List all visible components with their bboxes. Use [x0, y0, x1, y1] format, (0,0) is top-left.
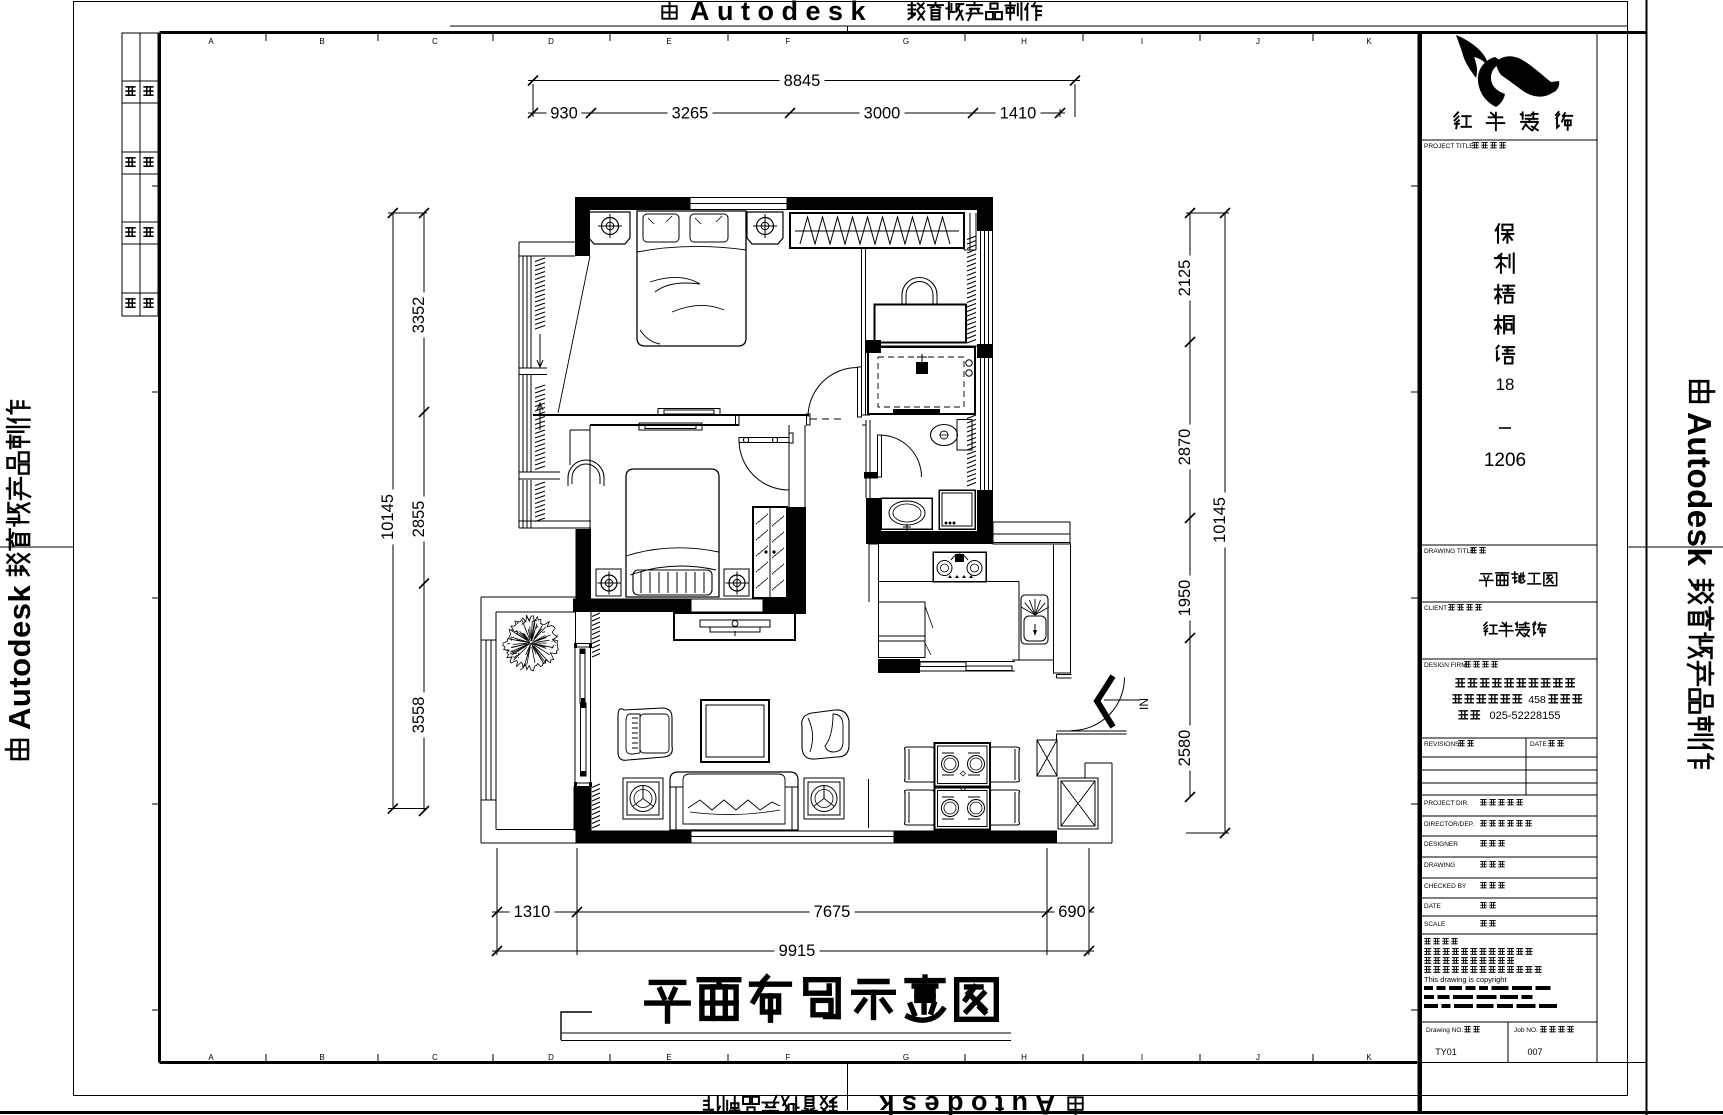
svg-text:Job NO.: Job NO.	[1514, 1027, 1538, 1034]
svg-text:REVISIONS: REVISIONS	[1424, 741, 1460, 748]
svg-text:3558: 3558	[410, 697, 428, 734]
svg-text:18: 18	[1496, 375, 1515, 394]
svg-text:2125: 2125	[1176, 260, 1194, 297]
svg-text:10145: 10145	[379, 494, 397, 540]
svg-text:1410: 1410	[1000, 105, 1037, 123]
svg-text:B: B	[319, 37, 324, 46]
svg-text:2870: 2870	[1176, 429, 1194, 466]
svg-text:D: D	[548, 1053, 554, 1062]
svg-text:9915: 9915	[779, 942, 816, 960]
svg-text:930: 930	[550, 105, 578, 123]
svg-text:DRAWING TITLE: DRAWING TITLE	[1424, 548, 1475, 555]
svg-text:This drawing is copyright: This drawing is copyright	[1424, 975, 1507, 984]
svg-text:A: A	[208, 37, 214, 46]
svg-text:F: F	[786, 37, 791, 46]
svg-text:025-52228155: 025-52228155	[1490, 710, 1561, 722]
svg-text:DATE: DATE	[1424, 903, 1442, 910]
svg-text:Autodesk: Autodesk	[2, 585, 37, 731]
svg-text:C: C	[432, 37, 438, 46]
svg-text:B: B	[319, 1053, 324, 1062]
svg-text:H: H	[1021, 1053, 1027, 1062]
svg-text:DESIGN FIRM: DESIGN FIRM	[1424, 662, 1467, 669]
svg-text:8845: 8845	[784, 72, 821, 90]
svg-text:G: G	[903, 1053, 909, 1062]
svg-text:CHECKED BY: CHECKED BY	[1424, 883, 1467, 890]
svg-text:DESIGNER: DESIGNER	[1424, 841, 1458, 848]
svg-text:IN: IN	[1137, 698, 1151, 710]
svg-text:Autodesk: Autodesk	[690, 0, 873, 26]
svg-text:K: K	[1366, 37, 1372, 46]
svg-text:J: J	[1256, 37, 1260, 46]
svg-text:3352: 3352	[410, 297, 428, 334]
svg-text:E: E	[666, 1053, 671, 1062]
svg-text:I: I	[1141, 37, 1143, 46]
svg-text:7675: 7675	[814, 903, 851, 921]
svg-text:2580: 2580	[1176, 730, 1194, 767]
svg-text:K: K	[1366, 1053, 1372, 1062]
svg-text:007: 007	[1527, 1047, 1542, 1057]
svg-text:F: F	[786, 1053, 791, 1062]
svg-text:SCALE: SCALE	[1424, 921, 1446, 928]
svg-text:E: E	[666, 37, 671, 46]
svg-text:Drawing NO.: Drawing NO.	[1426, 1027, 1463, 1034]
svg-text:DATE: DATE	[1530, 741, 1548, 748]
svg-text:D: D	[548, 37, 554, 46]
svg-text:2855: 2855	[410, 501, 428, 538]
svg-text:Autodesk: Autodesk	[1681, 412, 1718, 567]
svg-text:1206: 1206	[1484, 450, 1526, 471]
svg-text:PROJECT TITLE: PROJECT TITLE	[1424, 143, 1474, 150]
svg-text:DRAWING: DRAWING	[1424, 862, 1455, 869]
svg-text:C: C	[432, 1053, 438, 1062]
svg-text:G: G	[903, 37, 909, 46]
svg-text:3000: 3000	[864, 105, 901, 123]
svg-text:1310: 1310	[514, 903, 551, 921]
svg-text:H: H	[1021, 37, 1027, 46]
svg-text:A: A	[208, 1053, 214, 1062]
svg-text:CLIENT: CLIENT	[1424, 605, 1447, 612]
svg-text:J: J	[1256, 1053, 1260, 1062]
svg-text:3265: 3265	[672, 105, 709, 123]
svg-text:DIRECTOR/DEP.: DIRECTOR/DEP.	[1424, 821, 1474, 828]
svg-text:I: I	[1141, 1053, 1143, 1062]
svg-text:10145: 10145	[1211, 497, 1229, 543]
svg-text:690: 690	[1058, 903, 1086, 921]
svg-text:TY01: TY01	[1435, 1047, 1457, 1057]
svg-text:Autodesk: Autodesk	[872, 1090, 1055, 1115]
svg-text:458: 458	[1528, 694, 1546, 706]
svg-text:1950: 1950	[1176, 580, 1194, 617]
svg-text:PROJECT DIR.: PROJECT DIR.	[1424, 800, 1469, 807]
